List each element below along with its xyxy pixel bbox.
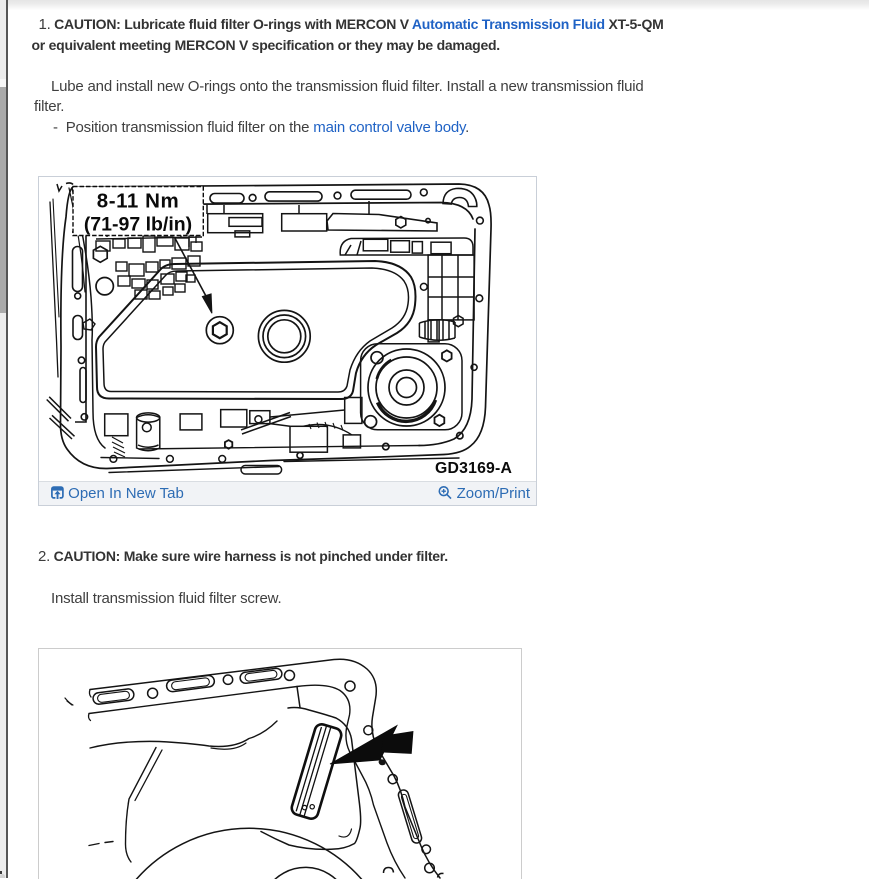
- svg-text:(71-97 lb/in): (71-97 lb/in): [84, 214, 192, 236]
- svg-text:GD3169-A: GD3169-A: [435, 460, 512, 477]
- svg-text:8-11 Nm: 8-11 Nm: [97, 190, 179, 213]
